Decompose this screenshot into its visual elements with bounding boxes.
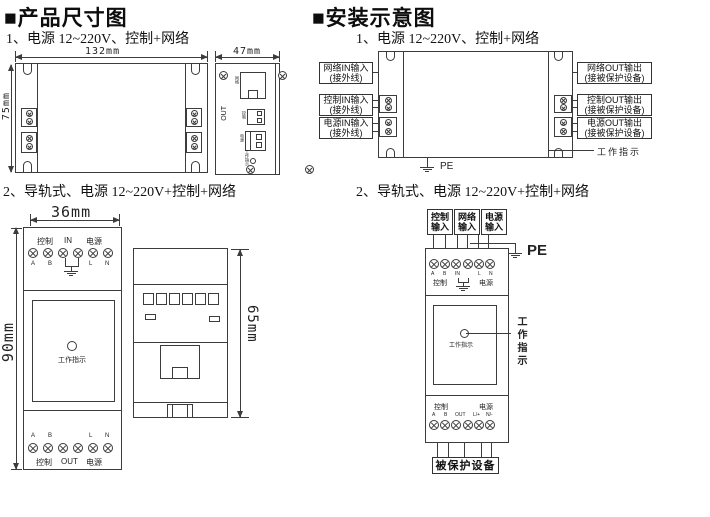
screw-icon <box>58 443 68 453</box>
led-window <box>145 314 156 320</box>
screw-icon <box>385 104 392 111</box>
label-line: 网络 <box>458 212 476 222</box>
rj45-notch <box>172 367 188 379</box>
connector-pin <box>256 134 262 140</box>
screw-icon <box>28 248 38 258</box>
label-line: 输入 <box>431 222 449 232</box>
dim-tick <box>30 214 31 226</box>
terminal-in-label: IN <box>455 271 460 277</box>
label-line: 电源IN输入 <box>323 118 368 128</box>
wire <box>373 123 379 124</box>
net-port-label: 网络 <box>234 76 240 84</box>
mount-slot-icon <box>23 64 32 75</box>
wire <box>491 443 492 457</box>
terminal-l-label: L <box>478 271 481 277</box>
panel-line <box>275 64 276 174</box>
screw-icon <box>278 71 287 80</box>
terminal-block <box>554 95 572 113</box>
mount-slot-icon <box>386 51 395 61</box>
dim-47mm-label: 47mm <box>233 46 261 57</box>
indicator-label: 工作指示 <box>597 145 641 158</box>
label-line: 电源 <box>485 212 503 222</box>
front-panel <box>32 300 115 402</box>
label-line: 输入 <box>458 222 476 232</box>
screw-icon <box>429 259 439 269</box>
section-divider <box>134 284 227 285</box>
ground-symbol-icon <box>456 286 470 292</box>
left-item1-label: 1、电源 12~220V、控制+网络 <box>6 28 189 48</box>
wire <box>464 443 465 457</box>
screw-icon <box>58 248 68 258</box>
bottom-pwr-label: 电源 <box>479 402 493 412</box>
dim-90mm-label: 90mm <box>0 322 17 362</box>
screw-icon <box>43 443 53 453</box>
screw-icon <box>485 420 495 430</box>
screw-icon <box>191 143 198 150</box>
section-divider <box>24 410 121 411</box>
terminal-n-label: N <box>105 433 109 439</box>
label-line: 控制IN输入 <box>323 95 368 105</box>
dip-switch <box>182 293 193 305</box>
screw-icon <box>191 135 198 142</box>
screw-icon <box>26 118 33 125</box>
dip-switch <box>169 293 180 305</box>
wire <box>437 443 438 457</box>
label-line: 网络OUT输出 <box>587 63 642 73</box>
bottom-ctrl-label: 控制 <box>36 457 52 468</box>
rj45-notch <box>248 90 258 99</box>
connector-line <box>250 132 251 150</box>
dim-tick <box>11 469 22 470</box>
mount-slot-icon <box>554 51 563 61</box>
dim-tick <box>215 51 216 62</box>
section-divider <box>24 290 121 291</box>
dim-65mm-label: 65mm <box>244 305 260 343</box>
dim-132mm-arrow <box>16 57 207 58</box>
dim-tick <box>231 249 249 250</box>
terminal-out-label: OUT <box>455 412 466 418</box>
screw-icon <box>560 128 567 135</box>
dim-tick <box>15 51 16 62</box>
label-line: 网络IN输入 <box>323 63 368 73</box>
dim-65mm-arrow <box>240 250 241 417</box>
indicator-label: 工作指示 <box>58 355 86 365</box>
screw-icon <box>451 259 461 269</box>
net-in-label-box: 网络IN输入 (接外线) <box>319 62 373 84</box>
terminal-block <box>21 132 37 153</box>
protected-equipment-box: 被保护设备 <box>432 457 499 474</box>
screw-icon <box>560 104 567 111</box>
terminal-a-label: A <box>432 412 435 418</box>
dim-90mm-arrow <box>16 228 17 469</box>
connector-pin <box>257 118 262 123</box>
indicator-callout-line <box>466 333 511 334</box>
screw-icon <box>474 420 484 430</box>
ground-symbol-icon <box>508 253 522 259</box>
wire <box>373 72 378 73</box>
dim-tick <box>11 228 22 229</box>
dip-switch <box>156 293 167 305</box>
wire <box>572 100 577 101</box>
ctrl-out-label-box: 控制OUT输出 (接被保护设备) <box>577 94 652 116</box>
screw-icon <box>385 119 392 126</box>
terminal-a-label: A <box>31 433 35 439</box>
ctrl-port-label: 控制 <box>241 111 247 119</box>
screw-icon <box>463 259 473 269</box>
screw-icon <box>463 420 473 430</box>
terminal-block <box>379 95 397 113</box>
dim-tick <box>231 417 249 418</box>
ground-symbol-icon <box>420 167 434 173</box>
din-clip-inner <box>172 404 188 418</box>
manual-page: ■产品尺寸图 ■安装示意图 1、电源 12~220V、控制+网络 1、电源 12… <box>0 0 710 517</box>
pwr-port-label: 电源 <box>239 134 245 142</box>
label-line: 被保护设备 <box>436 461 496 471</box>
label-line: (接外线) <box>330 73 363 83</box>
section-divider <box>426 395 508 396</box>
connector-pin <box>257 111 262 116</box>
mount-slot-icon <box>191 161 200 172</box>
wire <box>373 131 379 132</box>
terminal-a-label: A <box>31 261 35 267</box>
pe-stem <box>427 158 428 167</box>
ctrl-input-box: 控制 输入 <box>427 209 453 235</box>
device-outline <box>378 51 573 158</box>
flange-line <box>548 52 549 157</box>
dip-switch <box>208 293 219 305</box>
terminal-l-label: L <box>89 261 92 267</box>
indicator-led-icon <box>67 341 77 351</box>
right-item2-label: 2、导轨式、电源 12~220V+控制+网络 <box>356 181 589 201</box>
terminal-n-label: N <box>489 271 493 277</box>
device-outline <box>133 248 228 418</box>
top-ctrl-label: 控制 <box>37 236 53 247</box>
section-divider <box>134 342 227 343</box>
connector-block <box>247 109 265 125</box>
wire <box>373 100 379 101</box>
indicator-callout-line <box>548 150 594 151</box>
flange-line <box>403 52 404 157</box>
indicator-callout-label: 工作指示 <box>513 316 528 368</box>
screw-icon <box>73 443 83 453</box>
dim-75mm-arrow <box>11 65 12 172</box>
terminal-screw-row <box>28 248 113 258</box>
screw-icon <box>28 443 38 453</box>
terminal-b-label: B <box>443 271 446 277</box>
label-line: (接外线) <box>330 105 363 115</box>
wire <box>373 107 379 108</box>
out-label: OUT <box>221 106 228 121</box>
wire <box>572 123 577 124</box>
terminal-block <box>379 117 397 137</box>
net-input-box: 网络 输入 <box>454 209 480 235</box>
terminal-block <box>21 108 37 127</box>
top-in-label: IN <box>64 236 72 245</box>
screw-icon <box>26 135 33 142</box>
net-out-label-box: 网络OUT输出 (接被保护设备) <box>577 62 652 84</box>
flange-line <box>37 64 38 172</box>
dim-tick <box>279 51 280 62</box>
screw-icon <box>88 443 98 453</box>
device-outline <box>15 63 208 173</box>
led-window <box>209 316 220 322</box>
mount-slot-icon <box>191 64 200 75</box>
terminal-screw-row <box>28 443 113 453</box>
screw-icon <box>103 443 113 453</box>
section-divider <box>426 295 508 296</box>
pwr-out-label-box: 电源OUT输出 (接被保护设备) <box>577 117 652 139</box>
screw-icon <box>451 420 461 430</box>
label-line: 控制OUT输出 <box>587 95 642 105</box>
screw-icon <box>191 118 198 125</box>
terminal-screw-row <box>429 259 495 269</box>
screw-icon <box>191 110 198 117</box>
terminal-block <box>186 132 202 153</box>
terminal-l-label: L/+ <box>473 412 480 418</box>
screw-icon <box>26 143 33 150</box>
screw-icon <box>219 71 228 80</box>
connector-pin <box>256 142 262 148</box>
screw-icon <box>43 248 53 258</box>
top-pwr-label: 电源 <box>86 236 102 247</box>
indicator-led-icon <box>250 158 256 164</box>
wire <box>572 107 577 108</box>
label-line: 控制 <box>431 212 449 222</box>
dim-tick <box>207 51 208 62</box>
screw-icon <box>560 119 567 126</box>
section-divider <box>134 402 227 403</box>
screw-icon <box>440 259 450 269</box>
pwr-in-label-box: 电源IN输入 (接外线) <box>319 117 373 139</box>
bottom-ctrl-label: 控制 <box>434 402 448 412</box>
dip-switch <box>195 293 206 305</box>
terminal-screw-row <box>429 420 495 430</box>
dim-36mm-label: 36mm <box>51 203 91 221</box>
terminal-b-label: B <box>444 412 447 418</box>
top-ctrl-label: 控制 <box>433 278 447 288</box>
label-line: (接被保护设备) <box>585 128 645 138</box>
indicator-label: 工作指示 <box>244 150 250 166</box>
ground-symbol-icon <box>64 271 78 277</box>
dim-132mm-label: 132mm <box>85 46 120 57</box>
wire <box>448 443 449 457</box>
dip-switch <box>143 293 154 305</box>
pe-label: PE <box>527 242 547 259</box>
pe-stem <box>515 243 516 253</box>
screw-icon <box>26 110 33 117</box>
screw-icon <box>560 97 567 104</box>
label-line: 电源OUT输出 <box>587 118 642 128</box>
screw-icon <box>385 97 392 104</box>
pe-label: PE <box>440 161 453 172</box>
terminal-l-label: L <box>89 433 92 439</box>
screw-icon <box>88 248 98 258</box>
screw-icon <box>385 128 392 135</box>
terminal-n-label: N/- <box>486 412 493 418</box>
screw-icon <box>246 165 255 174</box>
pwr-input-box: 电源 输入 <box>481 209 507 235</box>
label-line: (接被保护设备) <box>585 105 645 115</box>
terminal-b-label: B <box>48 261 52 267</box>
screw-icon <box>73 248 83 258</box>
pe-wire <box>470 243 516 244</box>
right-item1-label: 1、电源 12~220V、控制+网络 <box>356 28 539 48</box>
wire <box>573 72 577 73</box>
screw-icon <box>103 248 113 258</box>
label-line: (接被保护设备) <box>585 73 645 83</box>
wire <box>572 131 577 132</box>
wire <box>481 443 482 457</box>
ground-bracket <box>65 266 79 267</box>
label-line: 输入 <box>485 222 503 232</box>
screw-icon <box>440 420 450 430</box>
screw-icon <box>305 165 314 174</box>
ctrl-in-label-box: 控制IN输入 (接外线) <box>319 94 373 116</box>
indicator-label: 工作指示 <box>449 340 473 349</box>
terminal-block <box>554 117 572 137</box>
left-item2-label: 2、导轨式、电源 12~220V+控制+网络 <box>3 181 236 201</box>
dim-36mm-arrow <box>31 220 119 221</box>
bottom-pwr-label: 电源 <box>86 457 102 468</box>
top-pwr-label: 电源 <box>479 278 493 288</box>
mount-slot-icon <box>386 148 395 158</box>
terminal-a-label: A <box>431 271 434 277</box>
screw-icon <box>429 420 439 430</box>
terminal-n-label: N <box>105 261 109 267</box>
terminal-block <box>186 108 202 127</box>
dim-47mm-arrow <box>216 57 279 58</box>
dim-tick <box>119 214 120 226</box>
screw-icon <box>474 259 484 269</box>
screw-icon <box>485 259 495 269</box>
mount-slot-icon <box>23 161 32 172</box>
bottom-out-label: OUT <box>61 457 78 466</box>
terminal-b-label: B <box>48 433 52 439</box>
label-line: (接外线) <box>330 128 363 138</box>
